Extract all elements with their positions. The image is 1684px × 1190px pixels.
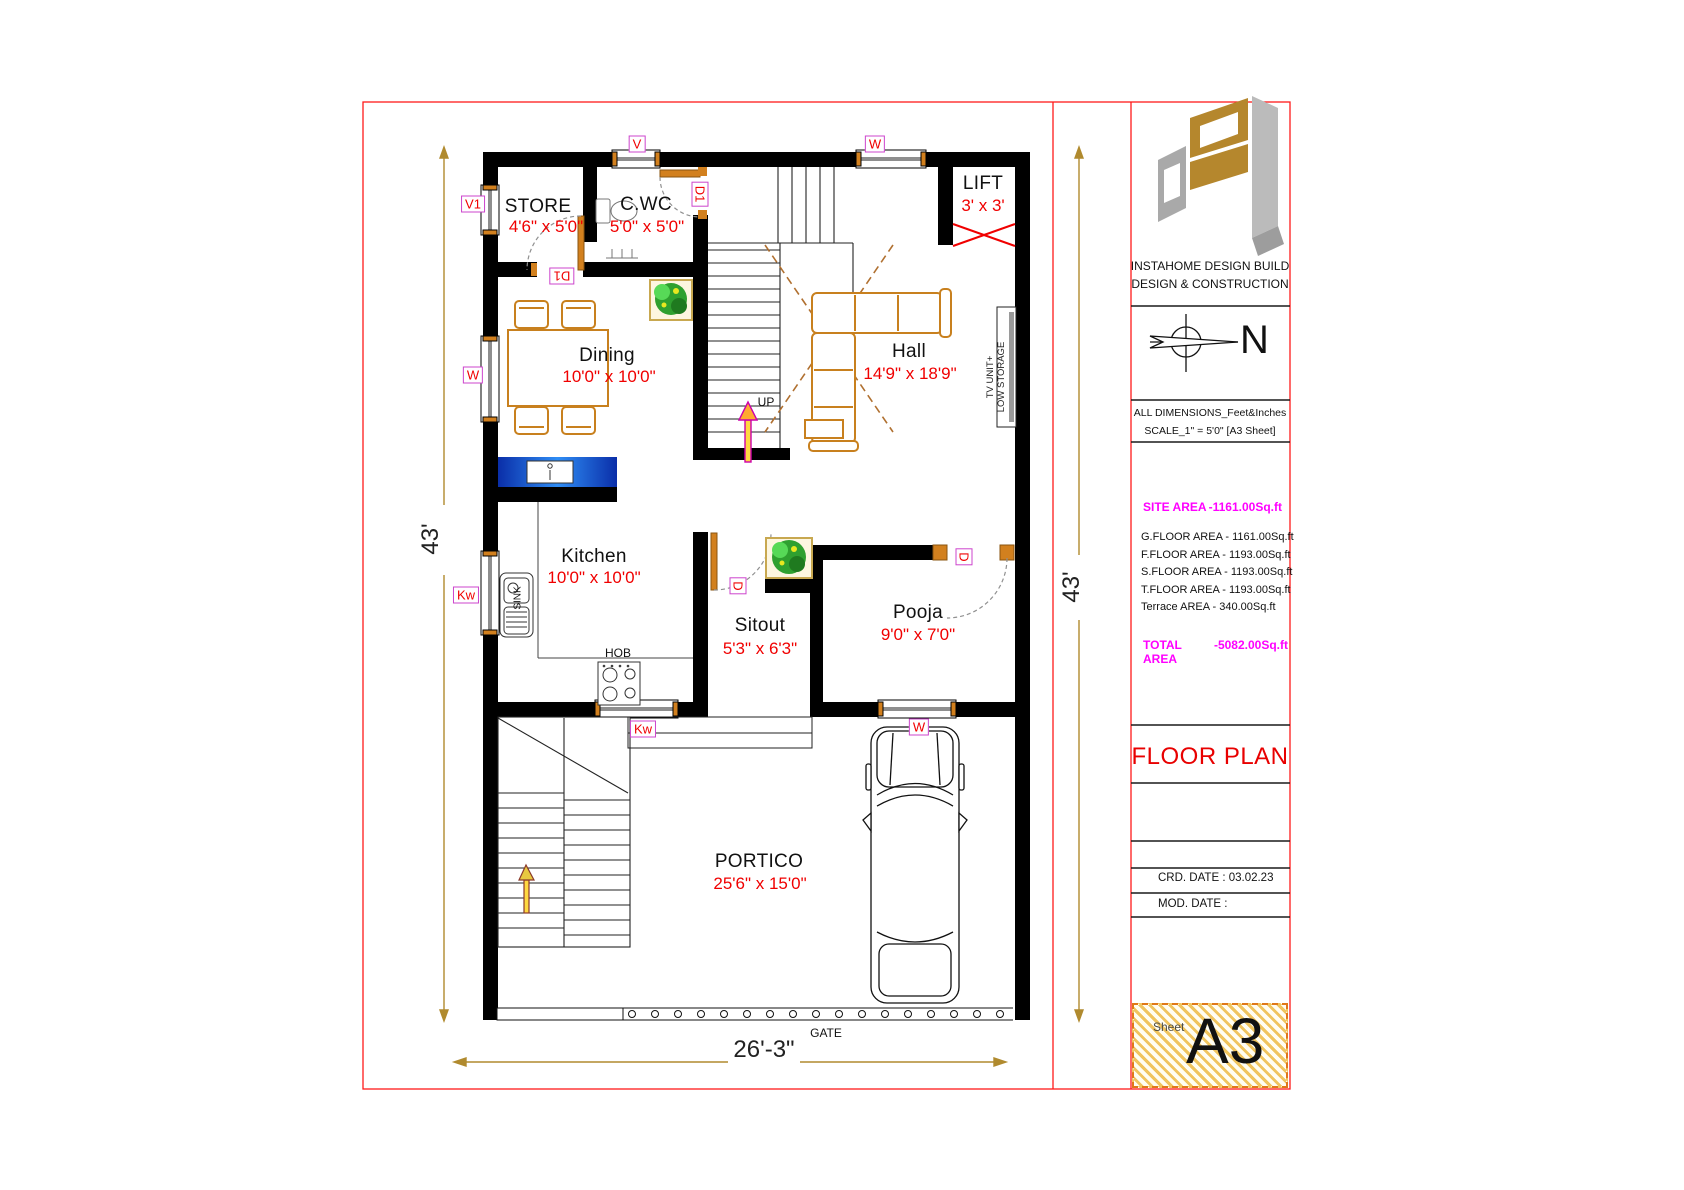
site-area-row: SITE AREA -1161.00Sq.ft	[1143, 500, 1282, 514]
store-size: 4'6" x 5'0"	[509, 217, 583, 237]
stairs-portico	[498, 717, 630, 947]
north-arrow-icon	[1150, 314, 1238, 372]
tag-w-left: W	[463, 367, 483, 384]
gate	[497, 1008, 1013, 1020]
drawing-title: FLOOR PLAN	[1131, 743, 1288, 771]
kitchen-size: 10'0" x 10'0"	[547, 568, 640, 588]
dining-size: 10'0" x 10'0"	[562, 367, 655, 387]
sitout-size: 5'3" x 6'3"	[723, 639, 797, 659]
note-dimensions: ALL DIMENSIONS_Feet&Inches	[1134, 407, 1287, 419]
sink-label: SINK	[513, 586, 524, 609]
dining-label: Dining	[579, 345, 635, 367]
window-kw-left	[481, 551, 499, 635]
window-w-top	[856, 150, 926, 168]
portico-label: PORTICO	[715, 851, 803, 873]
car	[863, 727, 967, 1003]
cwc-size: 5'0" x 5'0"	[610, 217, 684, 237]
plant-stair	[650, 280, 692, 320]
note-scale: SCALE_1" = 5'0" [A3 Sheet]	[1144, 425, 1275, 437]
gate-label: GATE	[810, 1026, 842, 1040]
hall-size: 14'9" x 18'9"	[863, 364, 956, 384]
portico-size: 25'6" x 15'0"	[713, 874, 806, 894]
tag-v1: V1	[461, 196, 485, 213]
tag-w-bottom: W	[909, 719, 929, 736]
tv-unit-label: TV UNIT+ LOW STORAGE	[985, 342, 1007, 413]
lift-size: 3' x 3'	[961, 196, 1004, 216]
mod-date: MOD. DATE :	[1158, 898, 1227, 910]
ffloor-area: F.FLOOR AREA - 1193.00Sq.ft	[1141, 549, 1291, 561]
tag-v: V	[629, 136, 646, 153]
tag-kw-bottom: Kw	[630, 721, 656, 738]
hall-label: Hall	[892, 341, 926, 363]
window-w-left	[481, 336, 499, 422]
plan-drawing	[0, 0, 1684, 1190]
sitout-label: Sitout	[735, 615, 785, 637]
hob-label: HOB	[605, 646, 631, 660]
total-area-value: -5082.00Sq.ft	[1214, 638, 1288, 666]
floor-plan-sheet: STORE 4'6" x 5'0" C.WC 5'0" x 5'0" LIFT …	[0, 0, 1684, 1190]
lift-cross-icon	[953, 224, 1015, 246]
dim-bottom: 26'-3"	[733, 1036, 794, 1064]
window-w-bottom	[878, 700, 956, 718]
company-name: INSTAHOME DESIGN BUILD	[1131, 259, 1289, 273]
tfloor-area: T.FLOOR AREA - 1193.00Sq.ft	[1141, 584, 1291, 596]
store-label: STORE	[505, 196, 572, 218]
sheet-number: A3	[1186, 1004, 1264, 1078]
hob	[598, 662, 640, 705]
company-tagline: DESIGN & CONSTRUCTION	[1131, 277, 1288, 291]
site-area-label: SITE AREA	[1143, 500, 1207, 514]
window-v-top	[612, 150, 660, 168]
tag-d1-store: D1	[550, 268, 575, 285]
tag-d1-cwc: D1	[692, 182, 709, 207]
instahome-logo	[1158, 96, 1284, 256]
sfloor-area: S.FLOOR AREA - 1193.00Sq.ft	[1141, 566, 1292, 578]
north-label: N	[1240, 318, 1269, 363]
crd-date: CRD. DATE : 03.02.23	[1158, 872, 1273, 884]
lift-label: LIFT	[963, 173, 1003, 195]
tag-d-sitout: D	[730, 577, 747, 594]
tv-unit-line2: LOW STORAGE	[996, 342, 1007, 413]
gfloor-area: G.FLOOR AREA - 1161.00Sq.ft	[1141, 531, 1294, 543]
plants	[650, 280, 812, 578]
pooja-label: Pooja	[893, 602, 943, 624]
dim-left: 43'	[417, 523, 445, 554]
pooja-size: 9'0" x 7'0"	[881, 625, 955, 645]
plant-sitout	[766, 538, 812, 578]
total-area-label: TOTAL AREA	[1143, 638, 1214, 666]
hall-table	[805, 420, 843, 438]
door-d-pooja	[933, 545, 1014, 618]
dim-right: 43'	[1058, 571, 1086, 602]
total-area-row: TOTAL AREA -5082.00Sq.ft	[1143, 638, 1288, 666]
cwc-label: C.WC	[620, 194, 672, 216]
terrace-area: Terrace AREA - 340.00Sq.ft	[1141, 601, 1276, 613]
sheet-label: Sheet	[1153, 1020, 1184, 1034]
site-area-value: -1161.00Sq.ft	[1209, 500, 1282, 514]
tv-unit-line1: TV UNIT+	[985, 356, 996, 399]
tag-w-top: W	[865, 136, 885, 153]
tag-d-pooja: D	[956, 548, 973, 565]
tag-kw-left: Kw	[453, 587, 479, 604]
up-label: UP	[758, 395, 775, 409]
gate-posts	[629, 1011, 1004, 1018]
kitchen-label: Kitchen	[561, 546, 626, 568]
